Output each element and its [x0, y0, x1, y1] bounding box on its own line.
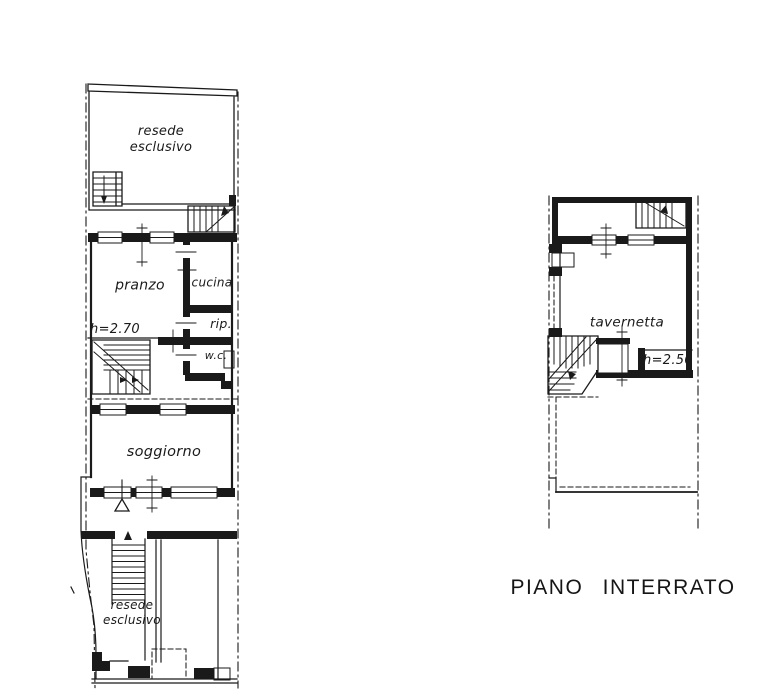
room-label-soggiorno: soggiorno: [127, 443, 201, 461]
stair-steps: [93, 176, 122, 202]
stair-basement-main: [548, 336, 598, 394]
stair-frame: [93, 172, 122, 206]
dashed-lines: [548, 276, 690, 487]
room-label-tavernetta: tavernetta: [590, 315, 664, 332]
stair-direction-arrow: [221, 206, 229, 216]
room-label-rip: rip.: [210, 316, 232, 332]
stair-garden: [112, 531, 145, 600]
marker-triangle: [115, 499, 129, 511]
height-annotation-basement: h=2.50: [643, 353, 693, 369]
plan-caption: PIANO INTERRATO: [510, 576, 735, 600]
room-label-line: esclusivo: [130, 140, 193, 156]
room-label-cucina: cucina: [192, 276, 233, 291]
stair-steps: [642, 202, 684, 228]
stair-main: [92, 340, 150, 394]
stair-steps: [112, 545, 145, 600]
courtyard-outline: [88, 84, 237, 233]
room-label-line: resede: [130, 124, 193, 140]
stair-frame: [636, 202, 686, 228]
stair-basement-top: [636, 202, 686, 228]
stair-direction-arrow: [132, 377, 139, 383]
room-label-resede-bottom: resede esclusivo: [103, 598, 161, 628]
height-annotation-ground-floor: h=2.70: [90, 322, 140, 338]
stair-courtyard-left: [93, 172, 122, 206]
room-label-line: esclusivo: [103, 613, 161, 628]
room-label-pranzo: pranzo: [115, 277, 165, 295]
room-label-wc: w.c.: [205, 349, 228, 363]
room-label-line: resede: [103, 598, 161, 613]
thin-outlines: [71, 338, 237, 683]
stair-direction-arrow: [101, 196, 107, 204]
stair-steps: [94, 342, 150, 394]
floorplan-sheet: resede esclusivo pranzo cucina h=2.70 ri…: [0, 0, 768, 698]
room-label-resede-top: resede esclusivo: [130, 124, 193, 157]
